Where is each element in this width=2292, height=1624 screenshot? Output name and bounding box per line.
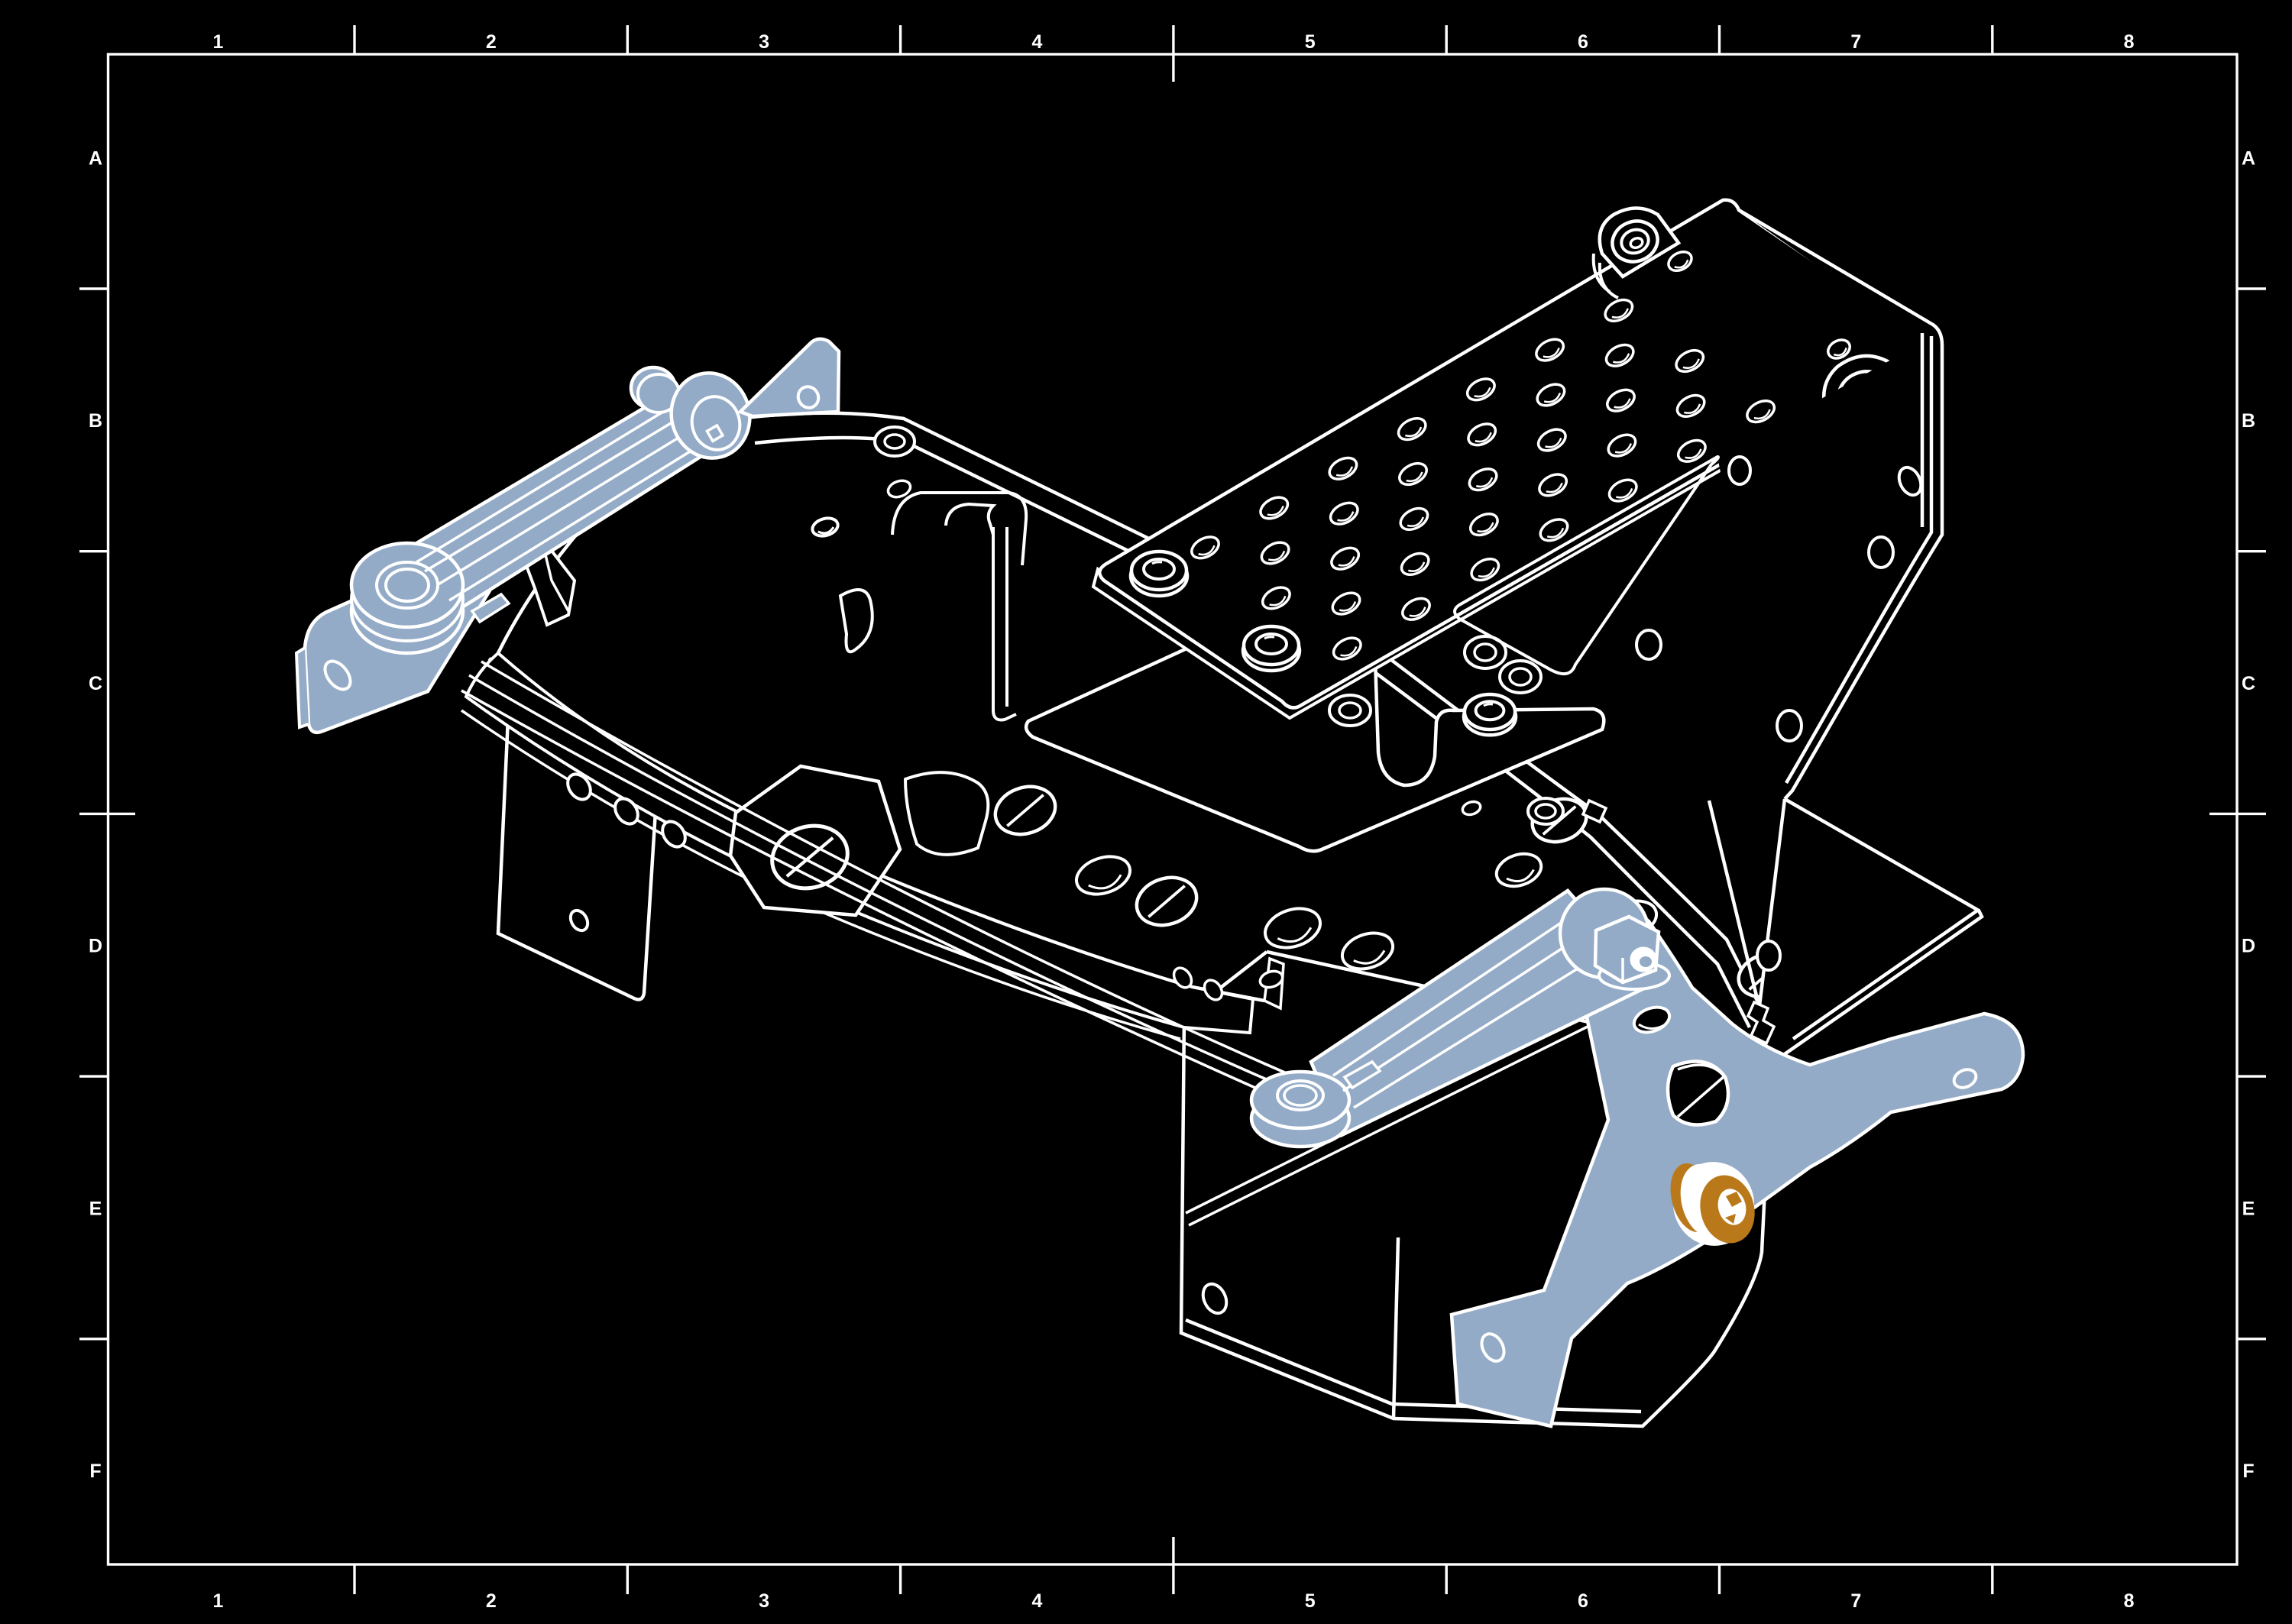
svg-text:1: 1 <box>213 31 224 53</box>
svg-text:5: 5 <box>1305 31 1316 53</box>
svg-text:F: F <box>2242 1461 2254 1482</box>
svg-text:3: 3 <box>759 31 769 53</box>
svg-text:E: E <box>89 1198 102 1219</box>
svg-text:C: C <box>2242 673 2255 694</box>
svg-text:6: 6 <box>1578 1590 1588 1612</box>
svg-text:D: D <box>2242 936 2255 957</box>
svg-text:A: A <box>2242 148 2255 170</box>
svg-text:4: 4 <box>1031 31 1042 53</box>
svg-text:8: 8 <box>2124 31 2135 53</box>
svg-text:1: 1 <box>213 1590 224 1612</box>
svg-text:E: E <box>2242 1198 2255 1219</box>
svg-text:C: C <box>89 673 102 694</box>
svg-text:5: 5 <box>1305 1590 1316 1612</box>
svg-text:7: 7 <box>1850 31 1861 53</box>
svg-text:7: 7 <box>1850 1590 1861 1612</box>
svg-text:2: 2 <box>486 1590 497 1612</box>
svg-text:F: F <box>89 1461 101 1482</box>
svg-text:8: 8 <box>2124 1590 2135 1612</box>
svg-text:A: A <box>89 148 102 170</box>
svg-text:6: 6 <box>1578 31 1588 53</box>
svg-text:2: 2 <box>486 31 497 53</box>
svg-text:4: 4 <box>1031 1590 1042 1612</box>
svg-text:3: 3 <box>759 1590 769 1612</box>
svg-text:D: D <box>89 936 102 957</box>
svg-text:B: B <box>2242 410 2255 432</box>
svg-text:B: B <box>89 410 102 432</box>
